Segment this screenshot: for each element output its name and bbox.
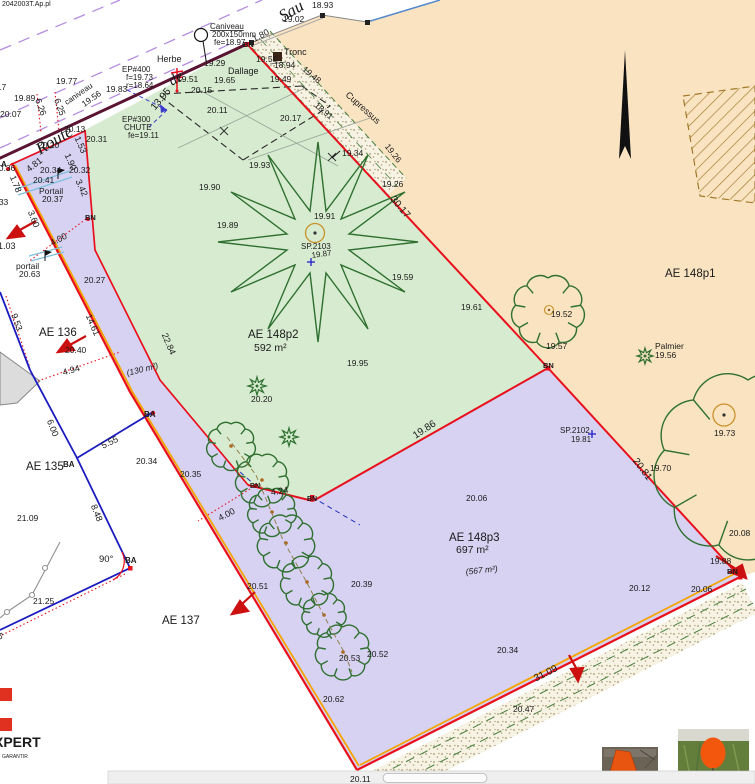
- map-label: 21.09: [17, 513, 39, 523]
- map-label: 19.34: [342, 148, 364, 158]
- map-label: fe=18.97: [214, 38, 246, 47]
- map-label: 8.48: [89, 503, 105, 523]
- map-label: 20.12: [629, 583, 651, 593]
- map-label: 6.00: [45, 418, 61, 438]
- map-label: 20.34: [497, 645, 519, 655]
- map-label: 20.08: [729, 528, 751, 538]
- map-label: 19.49: [270, 74, 292, 84]
- top-edge-fragment: 2042003T.Ap.pl: [2, 1, 51, 8]
- map-label: SP.2102: [560, 426, 590, 435]
- map-label: Herbe: [157, 54, 182, 64]
- map-label: 19.73: [714, 428, 736, 438]
- map-label: 20.20: [251, 394, 273, 404]
- map-label: 19.77: [56, 76, 78, 86]
- map-label: 18.93: [312, 0, 334, 10]
- parcel-label-ae136: AE 136: [39, 327, 77, 339]
- map-label: 20.47: [513, 704, 535, 714]
- map-label: 11.75: [0, 621, 6, 642]
- site-photo-balloon: [678, 729, 749, 778]
- map-label: 20.11: [207, 105, 228, 115]
- map-label: BN: [727, 567, 738, 576]
- map-label: 20.37: [42, 194, 64, 204]
- horizontal-scrollbar[interactable]: [108, 771, 755, 784]
- map-label: 90°: [99, 554, 114, 565]
- survey-plan-canvas: 2042003T.Ap.plRoutedeSau19.8319.7719.892…: [0, 0, 755, 784]
- map-label: BN: [250, 483, 260, 490]
- palm-center-dot: [644, 355, 647, 358]
- parcel-area-ae148p3: 697 m²: [456, 544, 489, 556]
- map-label: 20.07: [0, 109, 22, 119]
- parcel-label-ae148p1: AE 148p1: [665, 268, 716, 280]
- map-label: 19.93: [249, 160, 271, 170]
- map-label: 19.88: [710, 556, 732, 566]
- map-label: 19.95: [347, 358, 369, 368]
- map-label: BA: [125, 556, 137, 565]
- map-label: 19.81: [571, 435, 592, 444]
- map-label: 20.11: [350, 774, 371, 784]
- map-label: BA: [144, 410, 156, 419]
- map-label: 20.40: [65, 345, 87, 355]
- map-label: 19.90: [199, 182, 221, 192]
- map-label: 20.35: [180, 469, 202, 479]
- map-label: 20.20: [38, 140, 60, 150]
- map-label: BN: [243, 40, 254, 49]
- parcel-label-ae148p2: AE 148p2: [248, 329, 299, 341]
- logo-text: XPERT: [0, 734, 41, 750]
- map-label: 19.61: [461, 302, 483, 312]
- map-label: BN: [307, 496, 317, 503]
- map-label: 20.34: [40, 165, 62, 175]
- map-label: 19.65: [214, 75, 236, 85]
- logo-tagline: GARANTIR: [2, 754, 28, 760]
- parcel-area-ae148p2: 592 m²: [254, 342, 287, 354]
- map-label: BN: [85, 213, 96, 222]
- map-label: 19.56: [655, 350, 677, 360]
- map-label: 20.52: [367, 649, 389, 659]
- parcel-label-ae148p3: AE 148p3: [449, 532, 500, 544]
- parcel-label-ae135: AE 135: [26, 461, 64, 473]
- map-label: 19.91: [314, 211, 336, 221]
- map-label: 20.34: [136, 456, 158, 466]
- map-label: 20.31: [86, 134, 108, 144]
- map-label: 19.52: [551, 309, 573, 319]
- map-label: 20.17: [0, 82, 7, 92]
- map-label: 19.57: [546, 341, 568, 351]
- map-label: 20.15: [191, 85, 213, 95]
- map-label: 20.13: [64, 124, 86, 134]
- map-label: 5.55: [100, 434, 120, 451]
- map-label: Tronc: [284, 47, 307, 57]
- map-label: 19.02: [283, 14, 305, 24]
- map-label: 20.51: [247, 581, 269, 591]
- map-label: 20.62: [323, 694, 345, 704]
- map-label: A: [1, 160, 7, 169]
- map-label: BN: [543, 361, 554, 370]
- map-label: 19.29: [204, 58, 226, 68]
- palm-center-dot: [256, 385, 259, 388]
- map-label: 20.41: [33, 175, 55, 185]
- map-label: 20.53: [339, 653, 361, 663]
- map-label: 20.06: [466, 493, 488, 503]
- map-label: BA: [63, 460, 75, 469]
- map-label: 20.06: [691, 584, 713, 594]
- map-label: 19.89: [14, 93, 36, 103]
- caniveau-manhole-icon: [195, 29, 208, 42]
- map-label: 19.83: [106, 84, 128, 94]
- parcel-label-ae137: AE 137: [162, 615, 200, 627]
- scrollbar-thumb[interactable]: [383, 774, 487, 783]
- map-label: fe=19.11: [128, 131, 159, 140]
- map-label: 20.63: [19, 269, 41, 279]
- map-label: 21.25: [33, 596, 55, 606]
- tree-trunk-dot: [229, 444, 233, 448]
- map-label: 19.59: [392, 272, 414, 282]
- map-label: 20.17: [280, 113, 302, 123]
- map-label: 6.26: [33, 97, 48, 117]
- map-label: 20.27: [84, 275, 106, 285]
- surveyor-logo: [0, 688, 12, 731]
- map-label: r=18.64: [126, 81, 154, 90]
- tree-trunk-dot: [260, 478, 264, 482]
- map-label: 19.51: [177, 74, 199, 84]
- map-label: 19.70: [650, 463, 672, 473]
- map-label: 18.94: [274, 60, 296, 70]
- map-label: 19.26: [382, 179, 404, 189]
- map-label: 1.03: [0, 241, 16, 251]
- map-label: 20.39: [351, 579, 373, 589]
- palm-center-dot: [288, 436, 291, 439]
- map-label: 19.89: [217, 220, 239, 230]
- map-label: 20.33: [0, 197, 9, 207]
- map-label: 4.94: [61, 363, 81, 377]
